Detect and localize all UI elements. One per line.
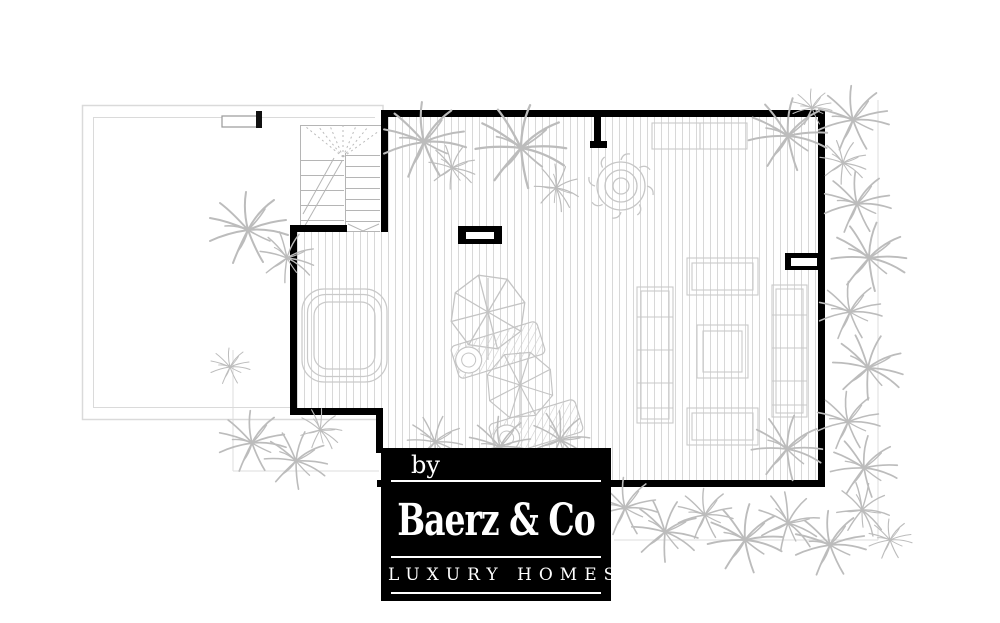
deck-planter-marker — [458, 226, 502, 244]
palm-tree-icon — [869, 519, 912, 558]
palm-tree-icon — [258, 422, 336, 497]
palm-tree-icon — [624, 489, 710, 572]
palm-tree-icon — [820, 282, 882, 339]
logo-divider — [391, 592, 601, 594]
right-wall-opening-marker — [785, 253, 823, 270]
window-marker — [222, 111, 262, 128]
palm-tree-icon — [824, 323, 915, 411]
palm-tree-icon — [826, 214, 915, 298]
staircase — [300, 118, 381, 232]
palm-tree-icon — [825, 172, 891, 232]
palm-tree-icon — [818, 392, 880, 449]
baerz-and-co-logo: by Baerz & Co LUXURY HOMES — [381, 448, 611, 601]
palm-tree-icon — [210, 192, 288, 263]
floor-plan-page: by Baerz & Co LUXURY HOMES — [0, 0, 1000, 623]
logo-brand-name: Baerz & Co — [381, 470, 611, 568]
palm-tree-icon — [211, 348, 250, 384]
